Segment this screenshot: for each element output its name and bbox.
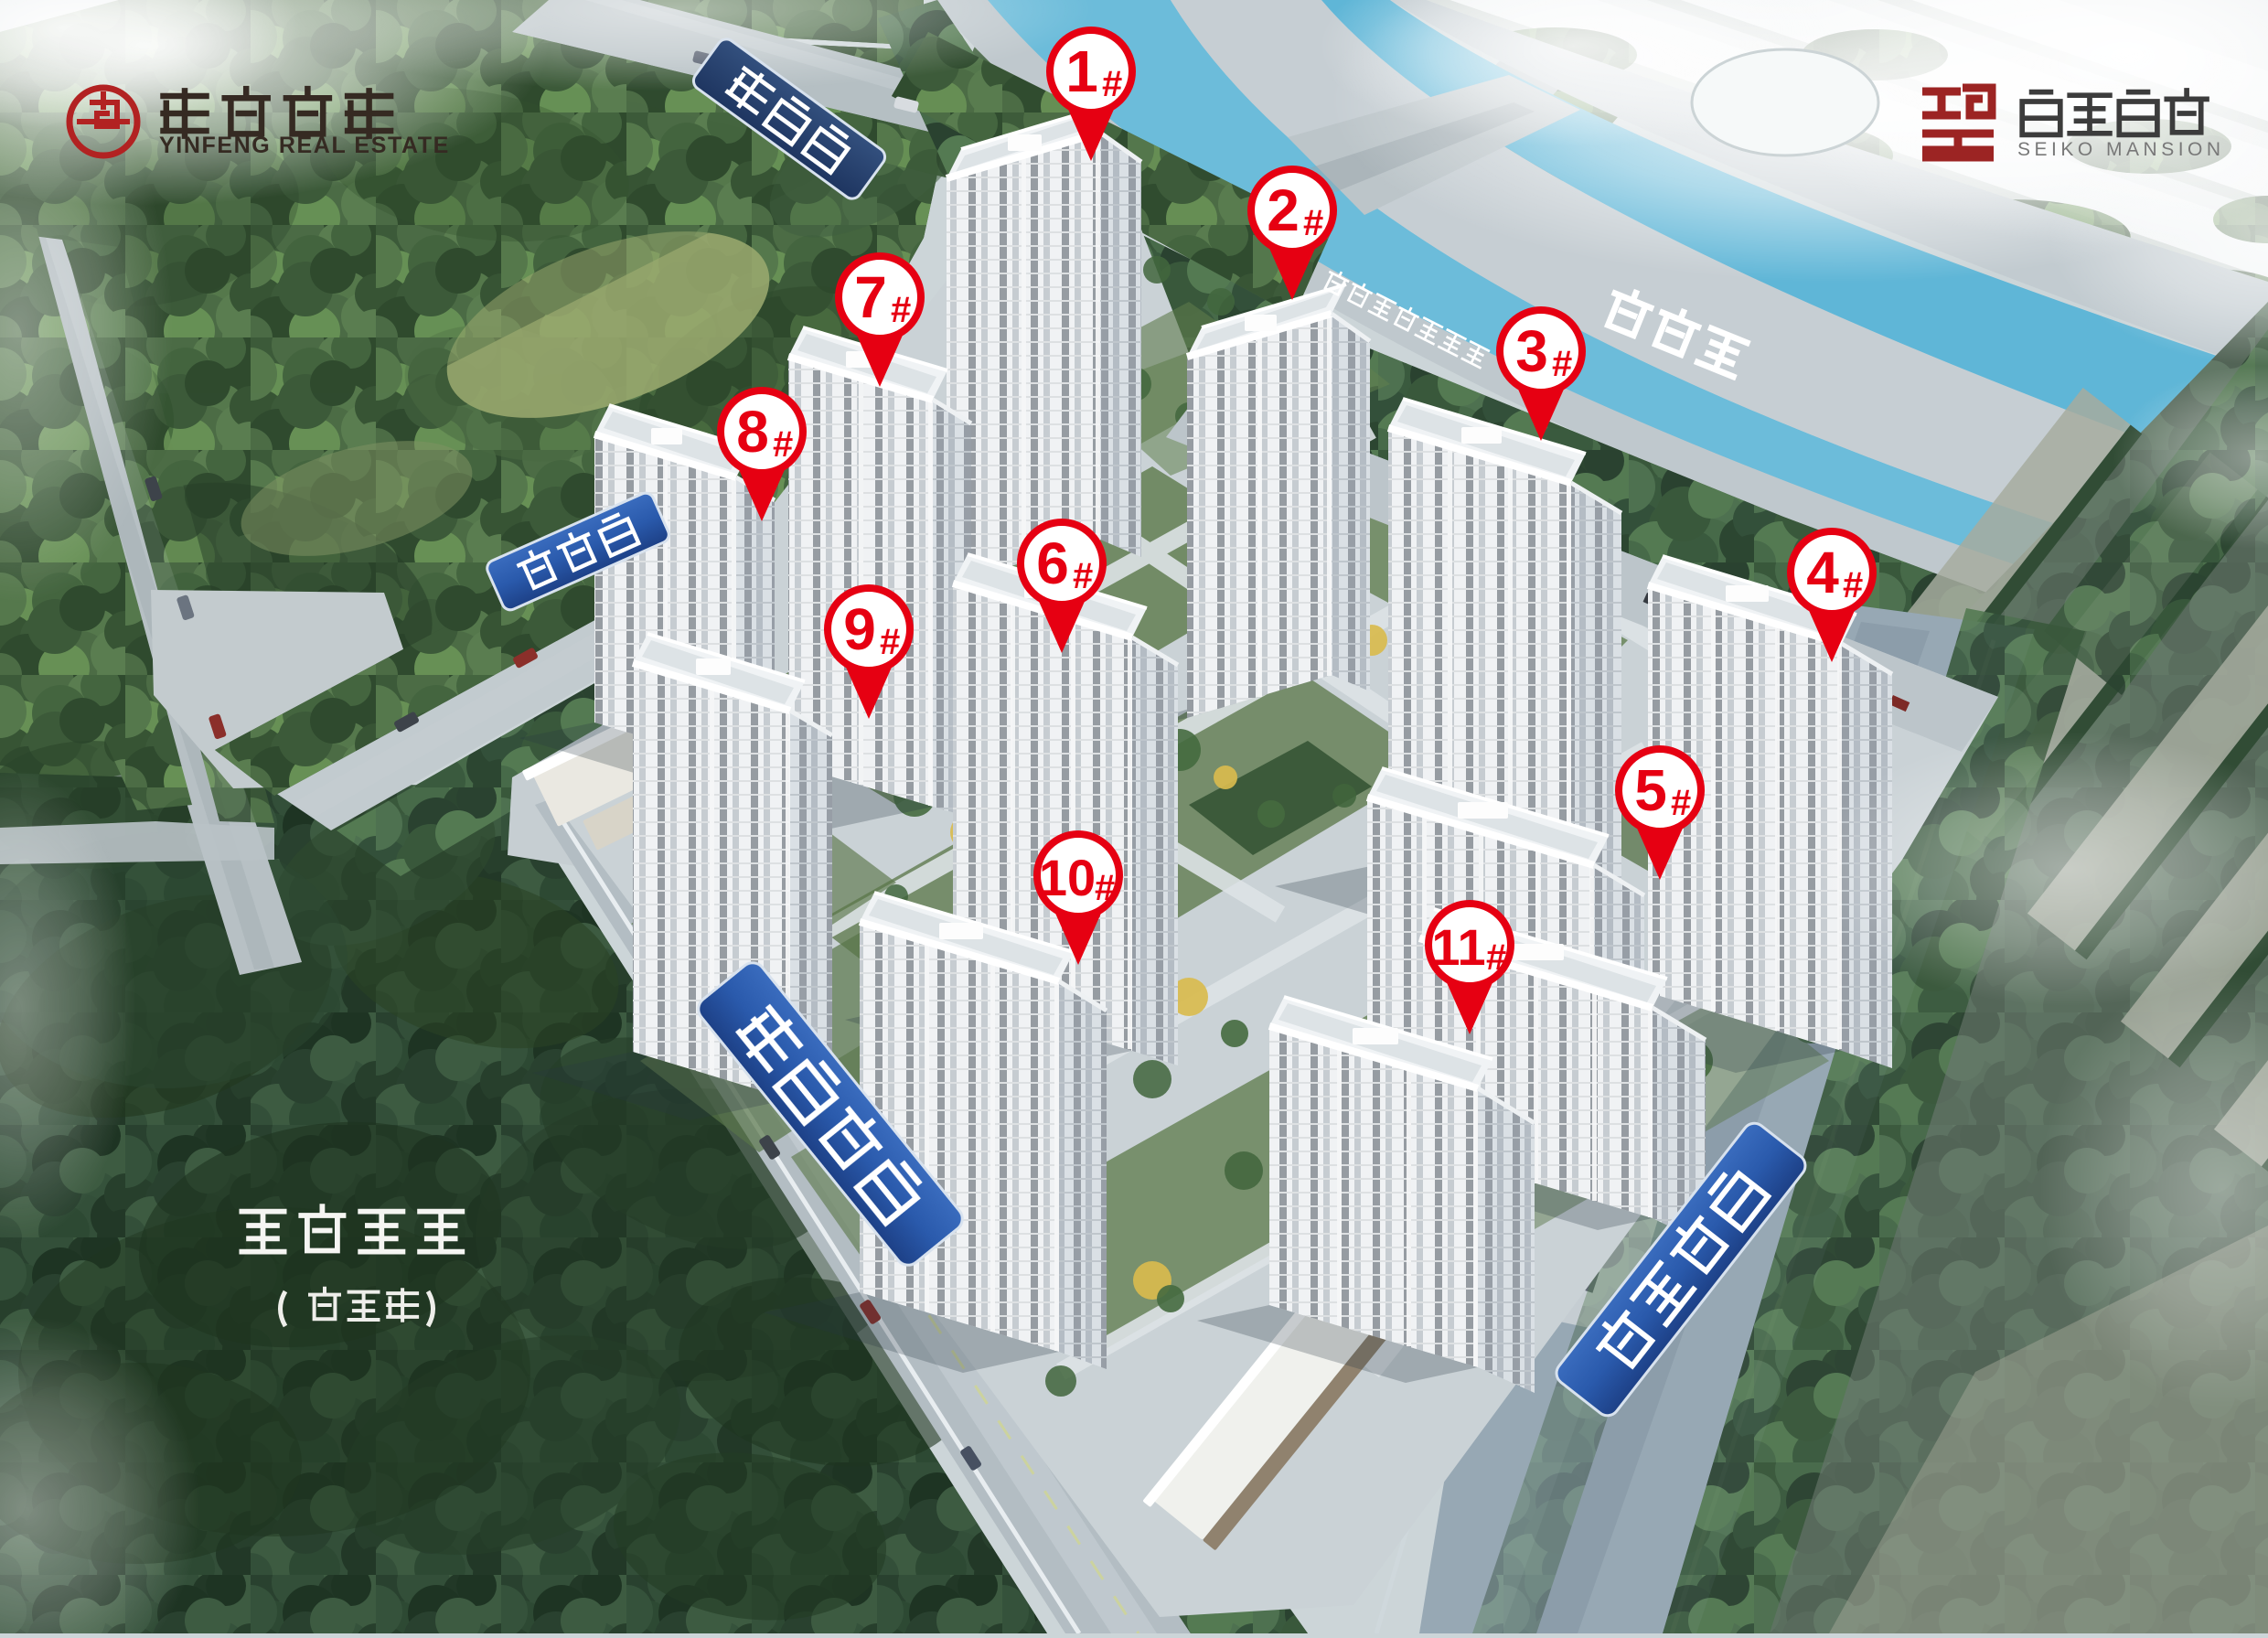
svg-text:#: # xyxy=(891,290,911,330)
svg-text:11: 11 xyxy=(1431,918,1485,976)
svg-text:#: # xyxy=(1843,565,1863,605)
svg-text:5: 5 xyxy=(1634,757,1667,823)
svg-text:#: # xyxy=(1486,937,1506,978)
svg-text:#: # xyxy=(1095,868,1115,908)
svg-text:10: 10 xyxy=(1039,849,1096,906)
svg-text:#: # xyxy=(1671,783,1691,823)
svg-text:SEIKO MANSION: SEIKO MANSION xyxy=(2017,139,2225,160)
svg-text:#: # xyxy=(880,622,900,662)
svg-text:YINFENG REAL ESTATE: YINFENG REAL ESTATE xyxy=(159,133,450,158)
svg-text:8: 8 xyxy=(736,399,769,465)
svg-text:2: 2 xyxy=(1267,177,1300,243)
svg-text:#: # xyxy=(1102,64,1122,104)
svg-text:#: # xyxy=(1303,203,1323,243)
svg-text:1: 1 xyxy=(1065,38,1098,104)
svg-text:9: 9 xyxy=(843,596,876,662)
svg-text:7: 7 xyxy=(854,264,887,330)
svg-text:#: # xyxy=(1552,344,1572,384)
svg-text:3: 3 xyxy=(1515,318,1548,384)
svg-text:#: # xyxy=(1073,556,1093,596)
svg-text:#: # xyxy=(773,424,793,465)
svg-text:4: 4 xyxy=(1806,540,1839,605)
svg-text:6: 6 xyxy=(1036,530,1069,596)
